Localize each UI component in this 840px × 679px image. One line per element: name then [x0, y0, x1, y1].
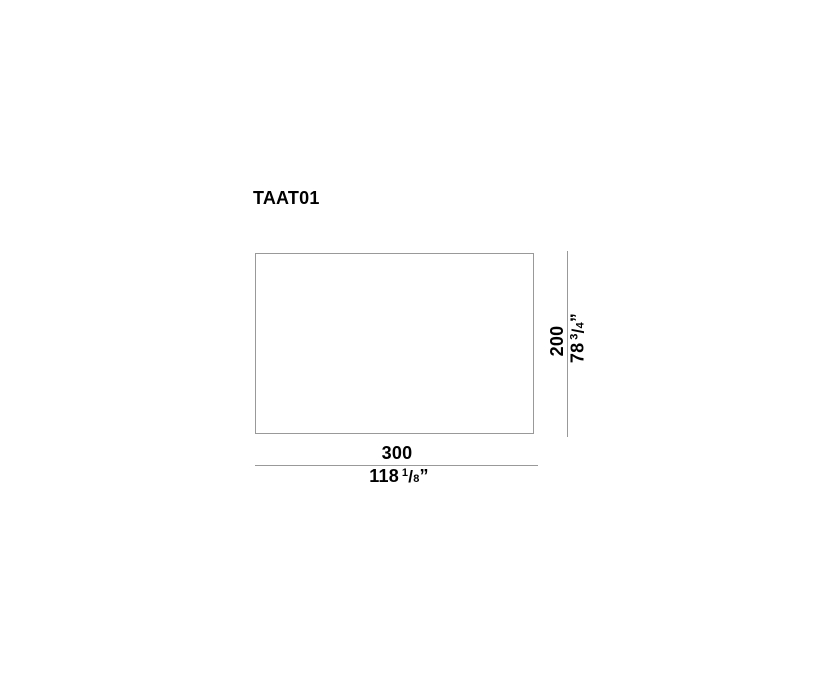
- spec-sheet-page: TAAT01 300 1181/8” 200 783/4”: [0, 0, 840, 679]
- product-code-label: TAAT01: [253, 189, 320, 207]
- height-inches-fraction-numerator: 3: [569, 333, 581, 339]
- height-inches-whole: 78: [568, 343, 588, 363]
- width-cm-label: 300: [382, 444, 413, 462]
- width-inches-label: 1181/8”: [369, 467, 428, 488]
- width-inches-whole: 118: [369, 466, 399, 486]
- height-inches-unit-mark: ”: [568, 313, 588, 322]
- height-inches-fraction-denominator: 4: [575, 322, 587, 328]
- width-inches-fraction-numerator: 1: [402, 467, 408, 479]
- tabletop-outline: [255, 253, 534, 434]
- height-cm-label: 200: [548, 326, 566, 357]
- height-inches-label: 783/4”: [569, 313, 590, 363]
- width-inches-unit-mark: ”: [420, 466, 429, 486]
